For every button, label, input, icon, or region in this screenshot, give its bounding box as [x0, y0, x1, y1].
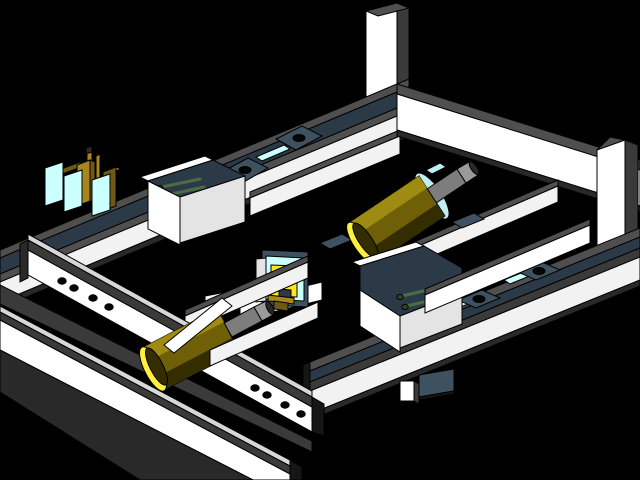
front-mid-rail-round-face	[297, 411, 305, 417]
front-mid-rail-round-face	[281, 402, 289, 408]
support-leg-face	[414, 381, 419, 404]
support-leg	[400, 381, 419, 404]
bolt-plate-round-face	[533, 268, 545, 275]
bolt-plate-round-face	[473, 296, 485, 303]
post-east-face	[625, 140, 638, 243]
open-channel-center-round-face	[402, 304, 408, 309]
bolt-plate-round-face	[293, 135, 305, 142]
bolt-plate-round-face	[239, 167, 251, 174]
front-mid-rail-round-face	[70, 285, 78, 291]
open-channel-center-round-face	[397, 294, 403, 299]
front-mid-rail-round-face	[58, 278, 66, 284]
front-mid-rail-face	[312, 397, 324, 436]
cad-viewport[interactable]	[0, 0, 640, 480]
clamp-assembly-face	[92, 174, 110, 216]
front-mid-rail-round-face	[263, 392, 271, 398]
clamp-assembly-face	[64, 170, 82, 212]
front-mid-rail-round-face	[89, 295, 97, 301]
front-mid-rail-round-face	[105, 304, 113, 310]
hanger-plate	[419, 369, 454, 400]
clamp-assembly-face	[45, 162, 63, 206]
mount-bracket-face	[274, 301, 288, 311]
front-mid-rail-round-face	[251, 385, 259, 391]
support-leg-face	[400, 381, 414, 401]
front-mid-rail-face	[20, 240, 28, 282]
assembly-drawing	[0, 0, 640, 480]
clamp-assembly-face	[86, 146, 92, 154]
